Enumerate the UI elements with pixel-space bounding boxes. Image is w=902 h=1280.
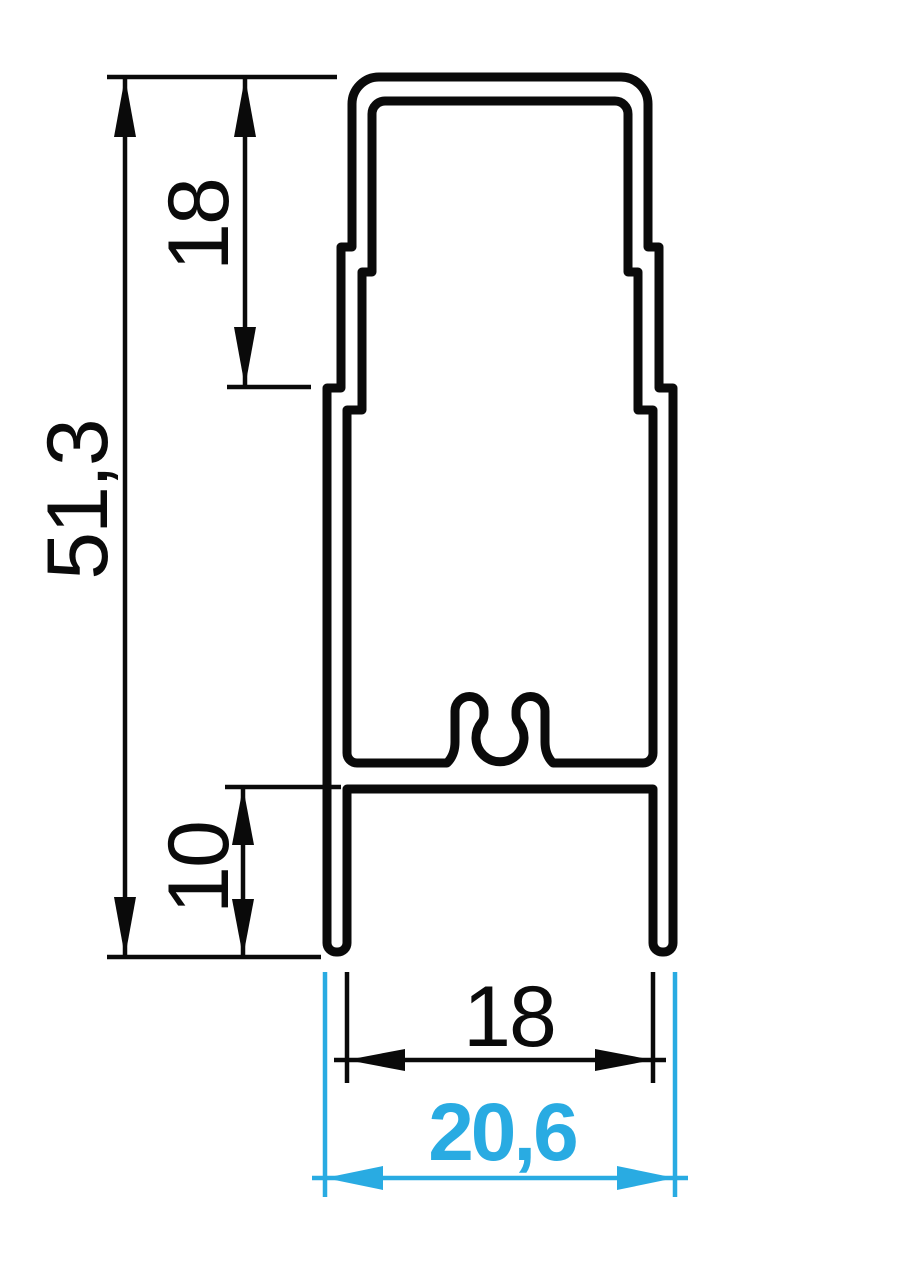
profile-technical-drawing: 51,3 18 10 18 <box>0 0 902 1280</box>
arrowhead-up-icon <box>234 77 256 137</box>
arrowhead-left-icon <box>347 1049 405 1071</box>
dimension-value: 10 <box>151 822 247 914</box>
dimension-value: 18 <box>463 969 555 1065</box>
dimension-value: 51,3 <box>30 420 126 579</box>
dimension-value-highlighted: 20,6 <box>428 1087 576 1178</box>
arrowhead-down-icon <box>114 897 136 957</box>
dimension-inner-leg-width: 18 <box>334 969 666 1083</box>
profile-cross-section <box>327 77 673 952</box>
drawing-canvas: 51,3 18 10 18 <box>0 0 902 1280</box>
arrowhead-right-icon <box>617 1166 675 1190</box>
arrowhead-up-icon <box>114 77 136 137</box>
dimension-value: 18 <box>151 179 247 271</box>
dimension-top-section-height: 18 <box>151 77 311 387</box>
arrowhead-right-icon <box>595 1049 653 1071</box>
arrowhead-down-icon <box>234 327 256 387</box>
arrowhead-left-icon <box>325 1166 383 1190</box>
dimension-leg-depth: 10 <box>151 787 341 957</box>
profile-inner-contour <box>347 101 653 763</box>
profile-outer-contour <box>327 77 673 952</box>
